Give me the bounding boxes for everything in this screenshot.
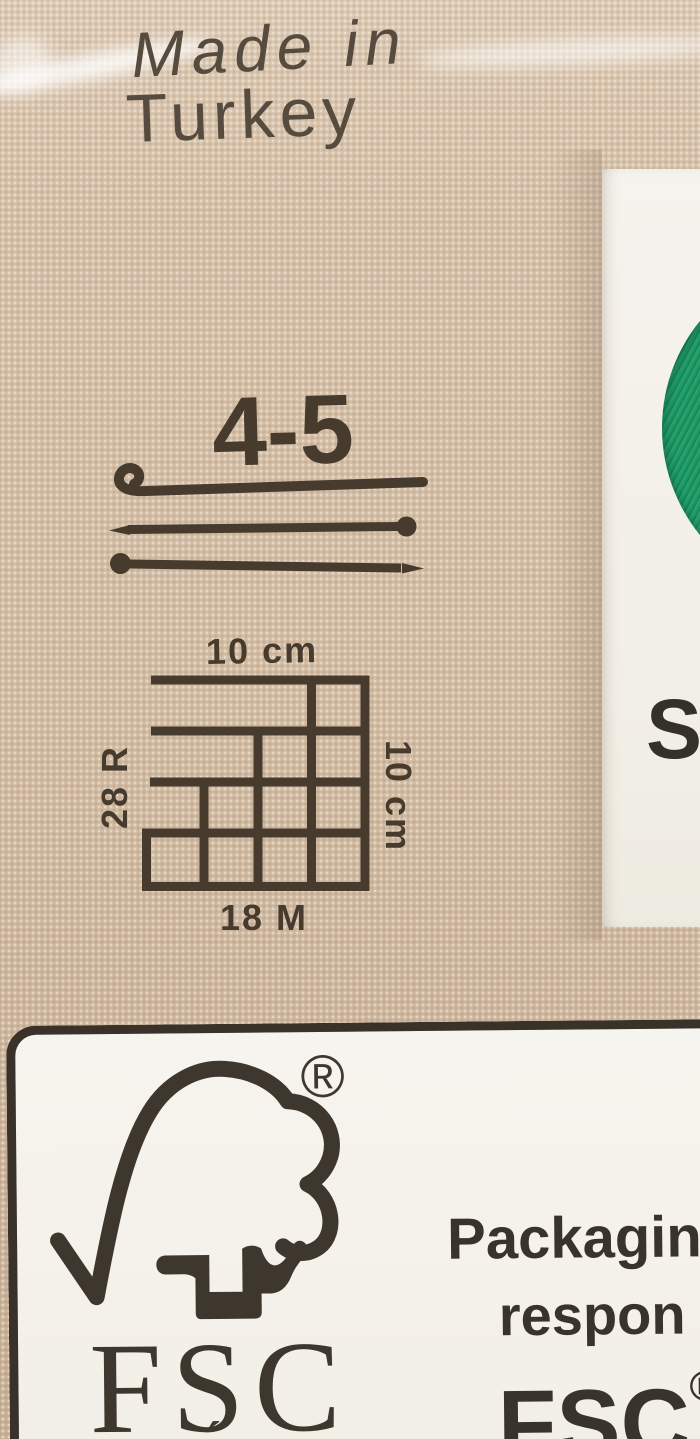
gauge-height-label: 10 cm bbox=[381, 726, 419, 866]
fsc-registered-superscript: ® bbox=[689, 1362, 700, 1409]
packaging-fsc-text: FSC bbox=[497, 1369, 690, 1439]
packaging-note-line3: FSC® bbox=[497, 1362, 700, 1439]
crochet-hook-icon bbox=[119, 468, 423, 491]
inner-label-card: S bbox=[602, 169, 700, 927]
packaging-note-line1: Packaging bbox=[447, 1203, 700, 1273]
gauge-swatch-grid-icon bbox=[142, 676, 369, 892]
brand-letter: S bbox=[646, 681, 700, 778]
gauge-width-label: 10 cm bbox=[182, 629, 343, 674]
fsc-certification-panel: ® FSC ´ Packaging respon FSC® bbox=[6, 1019, 700, 1439]
knitting-needle-icon-bottom bbox=[110, 553, 424, 574]
fsc-subtext-fragment: ´ bbox=[206, 1411, 222, 1439]
gauge-rows-label: 28 R bbox=[94, 727, 132, 847]
registered-trademark-icon: ® bbox=[300, 1042, 345, 1111]
green-yarn-circle bbox=[662, 258, 700, 598]
knitting-needle-icon-top bbox=[109, 517, 417, 537]
yarn-band-label-photo: Made in Turkey 4-5 bbox=[0, 0, 700, 1439]
gauge-stitches-label: 18 M bbox=[184, 897, 344, 939]
packaging-note-line2: respon bbox=[498, 1281, 685, 1348]
